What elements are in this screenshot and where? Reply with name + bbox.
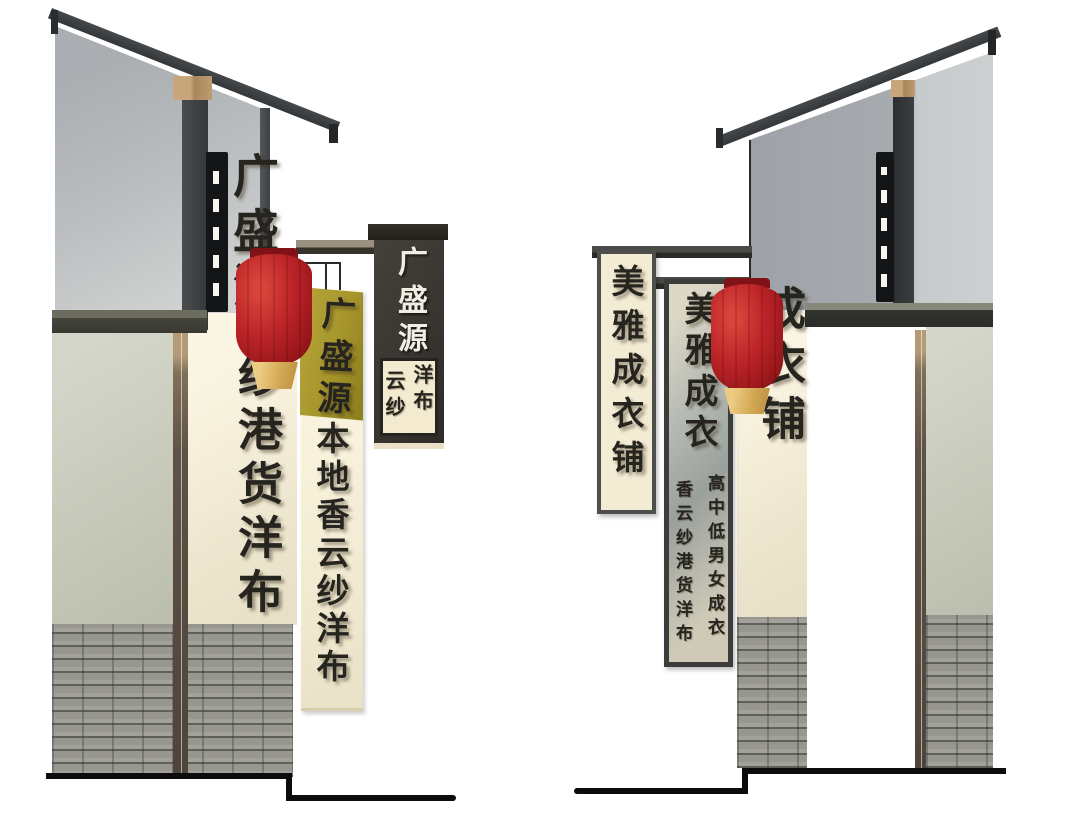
right-gable-post xyxy=(893,95,914,313)
right-roof-left-cap xyxy=(716,128,723,148)
left-storefront-green-wall xyxy=(52,333,173,625)
left-panel-right-column: 洋布 xyxy=(412,364,432,416)
right-eave-band xyxy=(805,303,993,327)
right-bracket-wood-block xyxy=(891,80,915,97)
right-gable-wall xyxy=(750,52,993,310)
left-panel-left-column: 云纱 xyxy=(384,370,404,422)
left-roof-end-cap xyxy=(51,10,58,34)
left-lantern-body xyxy=(236,254,312,364)
right-inner-banner-left-column: 香云纱港货洋布 xyxy=(673,480,690,648)
left-gable-post xyxy=(182,98,208,330)
left-lantern-gold-cap xyxy=(251,362,298,389)
left-bracket-wood-block xyxy=(173,76,212,100)
right-ground-line-upper xyxy=(742,768,1006,774)
left-wood-post xyxy=(173,333,188,778)
left-banner-hanger-wire xyxy=(325,262,341,291)
right-inner-banner-right-column: 高中低男女成衣 xyxy=(705,474,722,642)
left-board-sign-title: 广盛源 xyxy=(394,246,424,360)
right-left-pier-brick xyxy=(737,617,807,768)
right-lightbox-slots-icon xyxy=(881,167,887,287)
right-wood-post xyxy=(915,330,926,770)
left-wall-calligraphy: 纱港货洋布 xyxy=(234,352,279,622)
left-ground-line-upper xyxy=(46,773,291,779)
right-lantern-body xyxy=(711,284,783,390)
right-red-lantern xyxy=(711,278,783,416)
right-storefront-green-wall xyxy=(926,327,993,617)
right-right-pier-brick xyxy=(926,615,993,768)
right-lightbox-sign xyxy=(876,152,894,302)
left-board-sign-crossbar xyxy=(368,224,448,240)
left-eave-band xyxy=(52,310,207,333)
left-lightbox-sign xyxy=(206,152,228,312)
left-roof-right-cap xyxy=(329,124,338,143)
right-lantern-gold-cap xyxy=(724,388,770,414)
left-banner-body-text: 本地香云纱洋布 xyxy=(314,421,347,687)
storefront-signage-rendering: 广盛源 纱港货洋布 广盛源 本地香云纱洋布 广盛源 洋布 云纱 成衣铺 xyxy=(0,0,1080,828)
right-roof-right-cap xyxy=(988,30,996,55)
right-framed-banner-text: 美雅成衣铺 xyxy=(609,264,642,484)
right-ground-line-lower xyxy=(574,788,748,794)
left-ground-line-lower xyxy=(286,795,456,801)
left-banner-header-text: 广盛源 xyxy=(313,295,354,423)
left-red-lantern xyxy=(236,248,312,390)
left-lightbox-slots-icon xyxy=(213,168,219,296)
right-inner-banner-title: 美雅成衣 xyxy=(681,291,715,455)
